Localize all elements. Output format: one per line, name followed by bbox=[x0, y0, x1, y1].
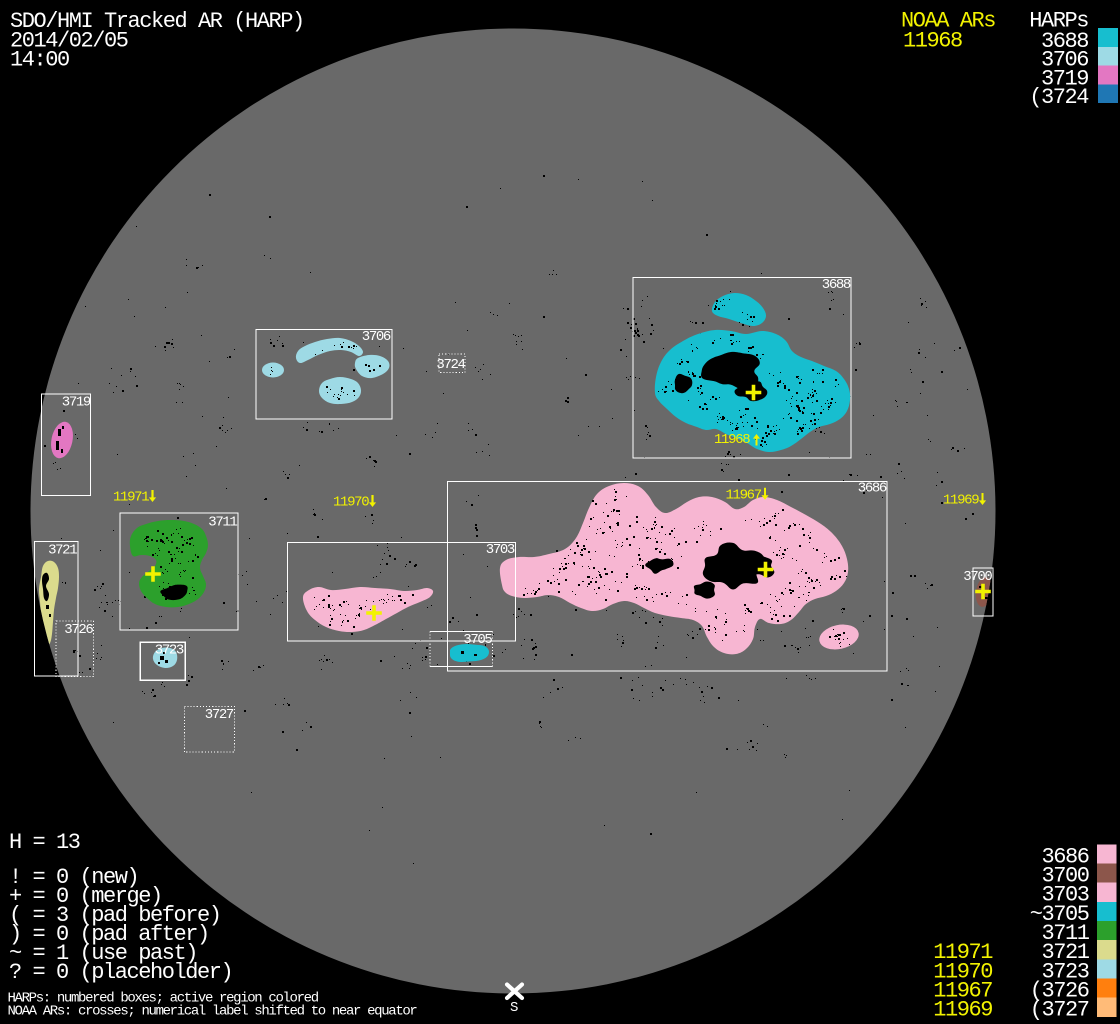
svg-text:14:00: 14:00 bbox=[10, 48, 69, 73]
svg-text:3686: 3686 bbox=[858, 480, 887, 496]
svg-text:NOAA ARs: crosses; numerical l: NOAA ARs: crosses; numerical label shift… bbox=[8, 1004, 418, 1020]
svg-text:3723: 3723 bbox=[155, 643, 184, 659]
svg-text:3700: 3700 bbox=[963, 569, 992, 585]
svg-text:3703: 3703 bbox=[486, 542, 515, 558]
svg-text:? = 0 (placeholder): ? = 0 (placeholder) bbox=[9, 960, 232, 985]
svg-text:11971: 11971 bbox=[113, 490, 149, 506]
svg-text:(3724: (3724 bbox=[1029, 85, 1089, 110]
svg-text:3726: 3726 bbox=[64, 622, 93, 638]
svg-text:11969: 11969 bbox=[933, 998, 992, 1023]
svg-text:S: S bbox=[510, 1000, 518, 1016]
svg-text:11969: 11969 bbox=[943, 493, 979, 509]
svg-text:3705: 3705 bbox=[463, 632, 492, 648]
svg-text:11968: 11968 bbox=[714, 432, 750, 448]
svg-text:3721: 3721 bbox=[48, 543, 77, 559]
svg-text:3688: 3688 bbox=[822, 277, 851, 293]
svg-text:3727: 3727 bbox=[205, 707, 234, 723]
svg-text:3719: 3719 bbox=[62, 395, 91, 411]
svg-text:11967: 11967 bbox=[726, 487, 762, 503]
svg-text:(3727: (3727 bbox=[1030, 998, 1089, 1023]
svg-text:3706: 3706 bbox=[362, 329, 391, 345]
svg-text:3724: 3724 bbox=[436, 357, 465, 373]
svg-text:3711: 3711 bbox=[208, 515, 237, 531]
svg-text:11968: 11968 bbox=[903, 29, 962, 54]
svg-text:H = 13: H = 13 bbox=[9, 830, 80, 855]
svg-text:11970: 11970 bbox=[333, 495, 369, 511]
